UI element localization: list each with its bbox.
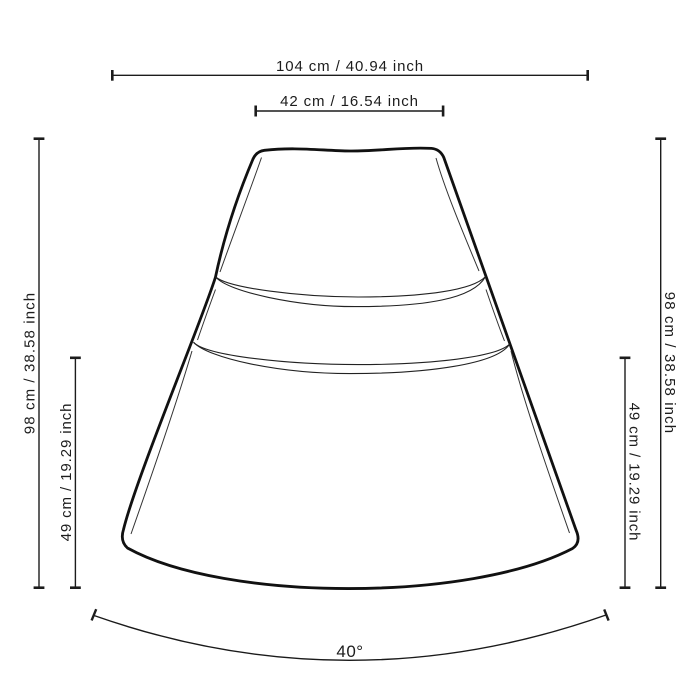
svg-text:104 cm / 40.94 inch: 104 cm / 40.94 inch [276, 58, 424, 75]
svg-text:42 cm / 16.54 inch: 42 cm / 16.54 inch [280, 93, 419, 110]
svg-text:98 cm / 38.58 inch: 98 cm / 38.58 inch [661, 292, 678, 434]
svg-text:40°: 40° [336, 642, 363, 661]
svg-text:98 cm / 38.58 inch: 98 cm / 38.58 inch [22, 292, 39, 434]
svg-text:49 cm / 19.29 inch: 49 cm / 19.29 inch [58, 403, 75, 542]
svg-text:49 cm / 19.29 inch: 49 cm / 19.29 inch [626, 403, 643, 542]
